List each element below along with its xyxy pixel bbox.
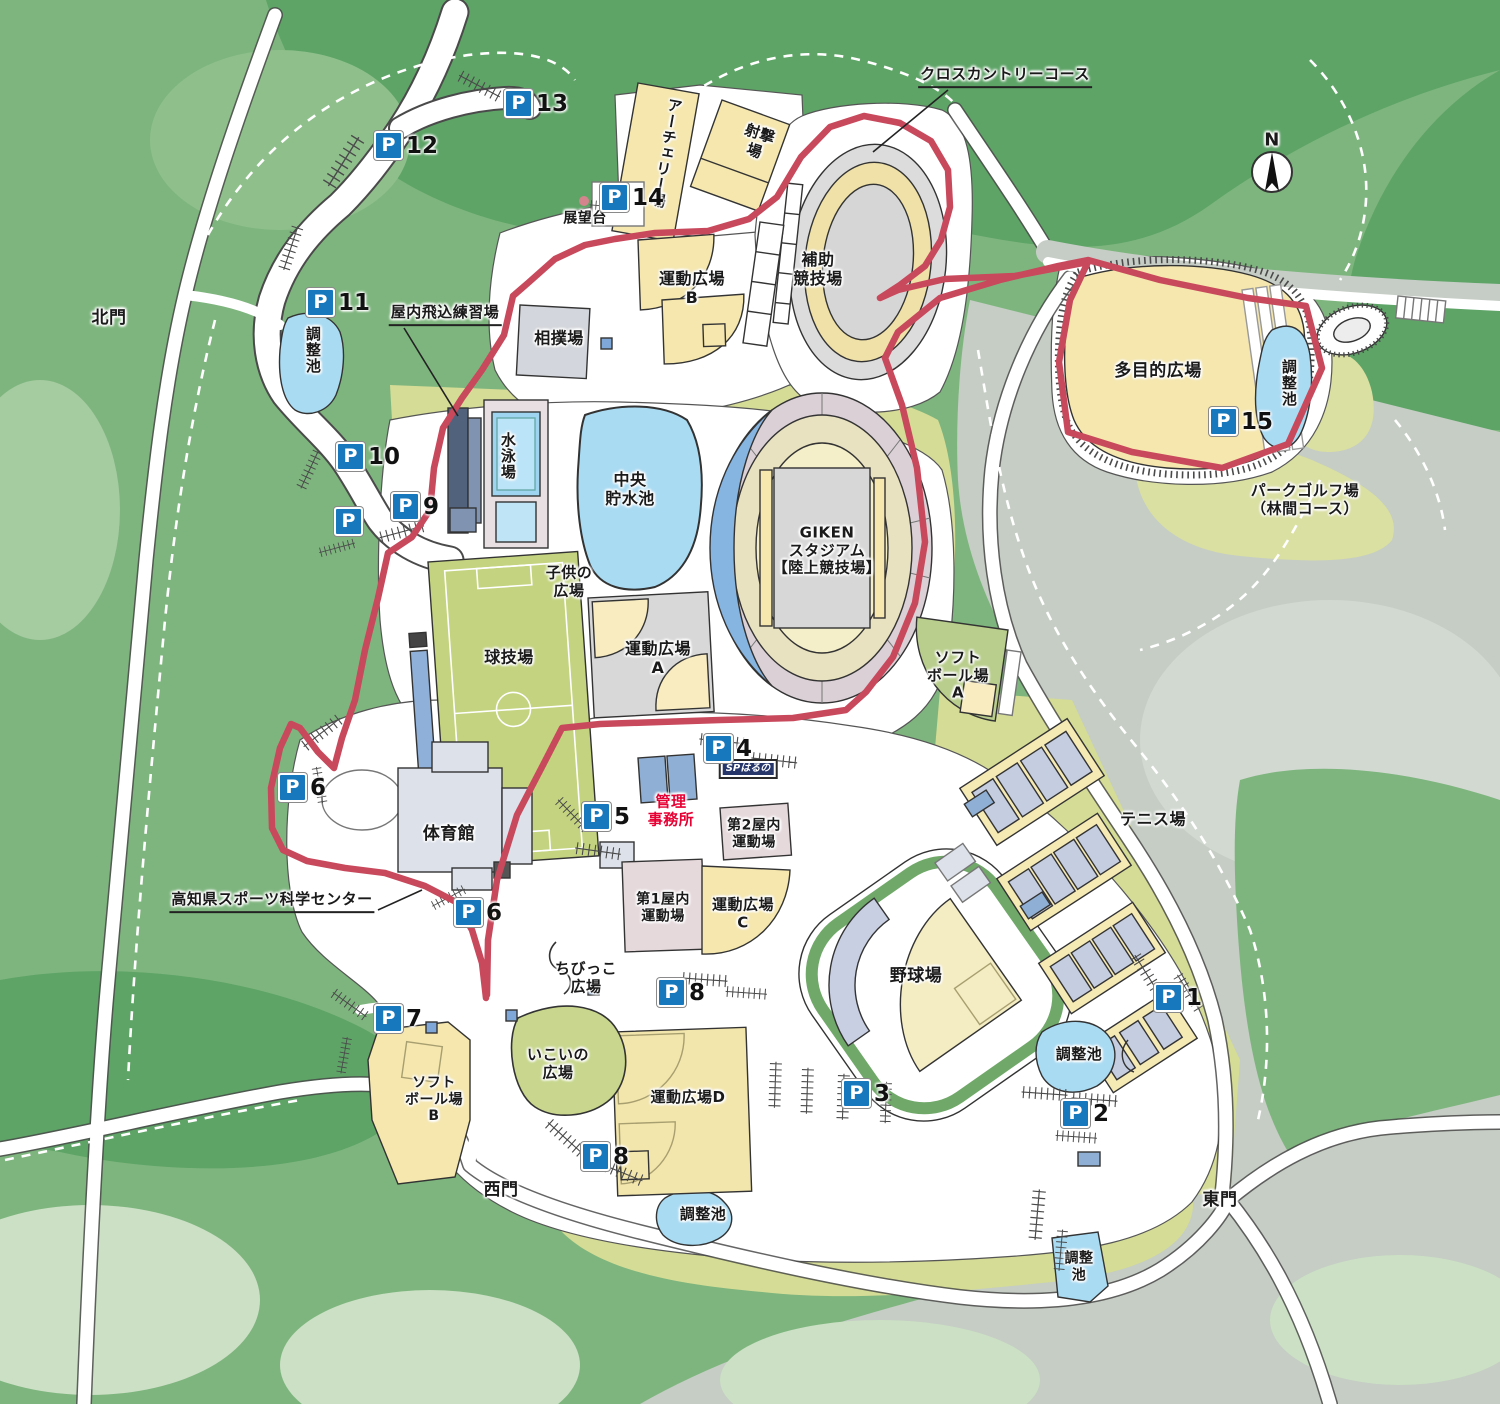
softball-b-label: ソフト ボール場 B xyxy=(405,1075,463,1125)
parking-icon: P xyxy=(374,131,403,160)
swimming-label: 水泳場 xyxy=(498,432,516,480)
lookout-label: 展望台 xyxy=(563,211,607,228)
parking-icon: P xyxy=(454,898,483,927)
parking-3: P3 xyxy=(842,1079,890,1108)
parking-icon: P xyxy=(374,1004,403,1033)
multipurpose-label: 多目的広場 xyxy=(1114,361,1202,381)
parking-5: P5 xyxy=(582,802,630,831)
parking-9: P9 xyxy=(391,492,439,521)
indoor-diving-label: 屋内飛込練習場 xyxy=(389,304,502,326)
parking-icon: P xyxy=(600,183,629,212)
parking-6-upper: P6 xyxy=(278,773,326,802)
parking-6-lower: P6 xyxy=(454,898,502,927)
parking-12: P12 xyxy=(374,131,438,160)
parking-icon: P xyxy=(306,288,335,317)
plaza-c-label: 運動広場 C xyxy=(712,896,774,931)
baseball-label: 野球場 xyxy=(890,966,943,986)
plaza-a-label: 運動広場 A xyxy=(625,640,691,678)
compass-icon xyxy=(1252,152,1292,192)
pond-label-southwest: 調整池 xyxy=(680,1206,727,1224)
parking-icon: P xyxy=(391,492,420,521)
parking-2: P2 xyxy=(1061,1099,1109,1128)
parking-icon: P xyxy=(334,507,363,536)
parking-icon: P xyxy=(581,1142,610,1171)
sumo-label: 相撲場 xyxy=(534,330,584,349)
pond-label-p15: 調整池 xyxy=(1279,359,1297,407)
giken-stadium-label: GIKEN スタジアム 【陸上競技場】 xyxy=(773,524,882,577)
parking-8-lower: P8 xyxy=(581,1142,629,1171)
ball-game-label: 球技場 xyxy=(484,649,534,668)
parking-icon: P xyxy=(842,1079,871,1108)
parking-10: P10 xyxy=(336,442,400,471)
central-reservoir-label: 中央 貯水池 xyxy=(605,471,655,509)
kids-plaza-label: 子供の 広場 xyxy=(546,564,593,599)
parking-unnumbered: P xyxy=(334,507,366,536)
cross-country-course-label: クロスカントリーコース xyxy=(918,66,1092,88)
east-gate-label: 東門 xyxy=(1203,1190,1238,1210)
admin-office-label: 管理 事務所 xyxy=(648,793,695,828)
science-center-label: 高知県スポーツ科学センター xyxy=(169,891,374,913)
parking-15: P15 xyxy=(1209,407,1273,436)
parking-icon: P xyxy=(1154,983,1183,1012)
parking-icon: P xyxy=(1209,407,1238,436)
parking-14: P14 xyxy=(600,183,664,212)
parking-13: P13 xyxy=(504,89,568,118)
indoor1-label: 第1屋内 運動場 xyxy=(636,891,690,924)
softball-a-label: ソフト ボール場 A xyxy=(927,649,989,702)
sp-haruno-label: SPはるの xyxy=(723,763,774,775)
parking-icon: P xyxy=(278,773,307,802)
parking-icon: P xyxy=(504,89,533,118)
parking-icon: P xyxy=(336,442,365,471)
plaza-b-label: 運動広場 B xyxy=(659,270,725,308)
west-gate-label: 西門 xyxy=(484,1180,519,1200)
indoor2-label: 第2屋内 運動場 xyxy=(727,817,781,850)
park-guide-map: クロスカントリーコース 展望台 北門 屋内飛込練習場 相撲場 運動広場 B 補助… xyxy=(0,0,1500,1404)
parking-1: P1 xyxy=(1154,983,1202,1012)
north-gate-label: 北門 xyxy=(92,308,127,328)
pond-label-baseball: 調整池 xyxy=(1056,1046,1103,1064)
parking-8-upper: P8 xyxy=(657,978,705,1007)
parking-7: P7 xyxy=(374,1004,422,1033)
plaza-d-label: 運動広場D xyxy=(651,1089,726,1107)
gym-label: 体育館 xyxy=(423,824,476,844)
map-canvas xyxy=(0,0,1500,1404)
parking-4: P4 xyxy=(704,734,752,763)
ikoi-label: いこいの 広場 xyxy=(527,1046,589,1081)
park-golf-label: パークゴルフ場 （林間コース） xyxy=(1251,482,1360,517)
compass-n-label: N xyxy=(1264,129,1280,150)
parking-icon: P xyxy=(657,978,686,1007)
pond-label-southeast: 調整 池 xyxy=(1065,1250,1094,1283)
parking-icon: P xyxy=(1061,1099,1090,1128)
lookout-dot xyxy=(579,196,589,206)
aux-stadium-label: 補助 競技場 xyxy=(793,251,843,289)
parking-icon: P xyxy=(582,802,611,831)
pond-label-p11: 調整池 xyxy=(303,326,321,374)
parking-icon: P xyxy=(704,734,733,763)
parking-11: P11 xyxy=(306,288,370,317)
chibikko-label: ちびっこ 広場 xyxy=(555,960,617,995)
tennis-label: テニス場 xyxy=(1120,811,1186,830)
